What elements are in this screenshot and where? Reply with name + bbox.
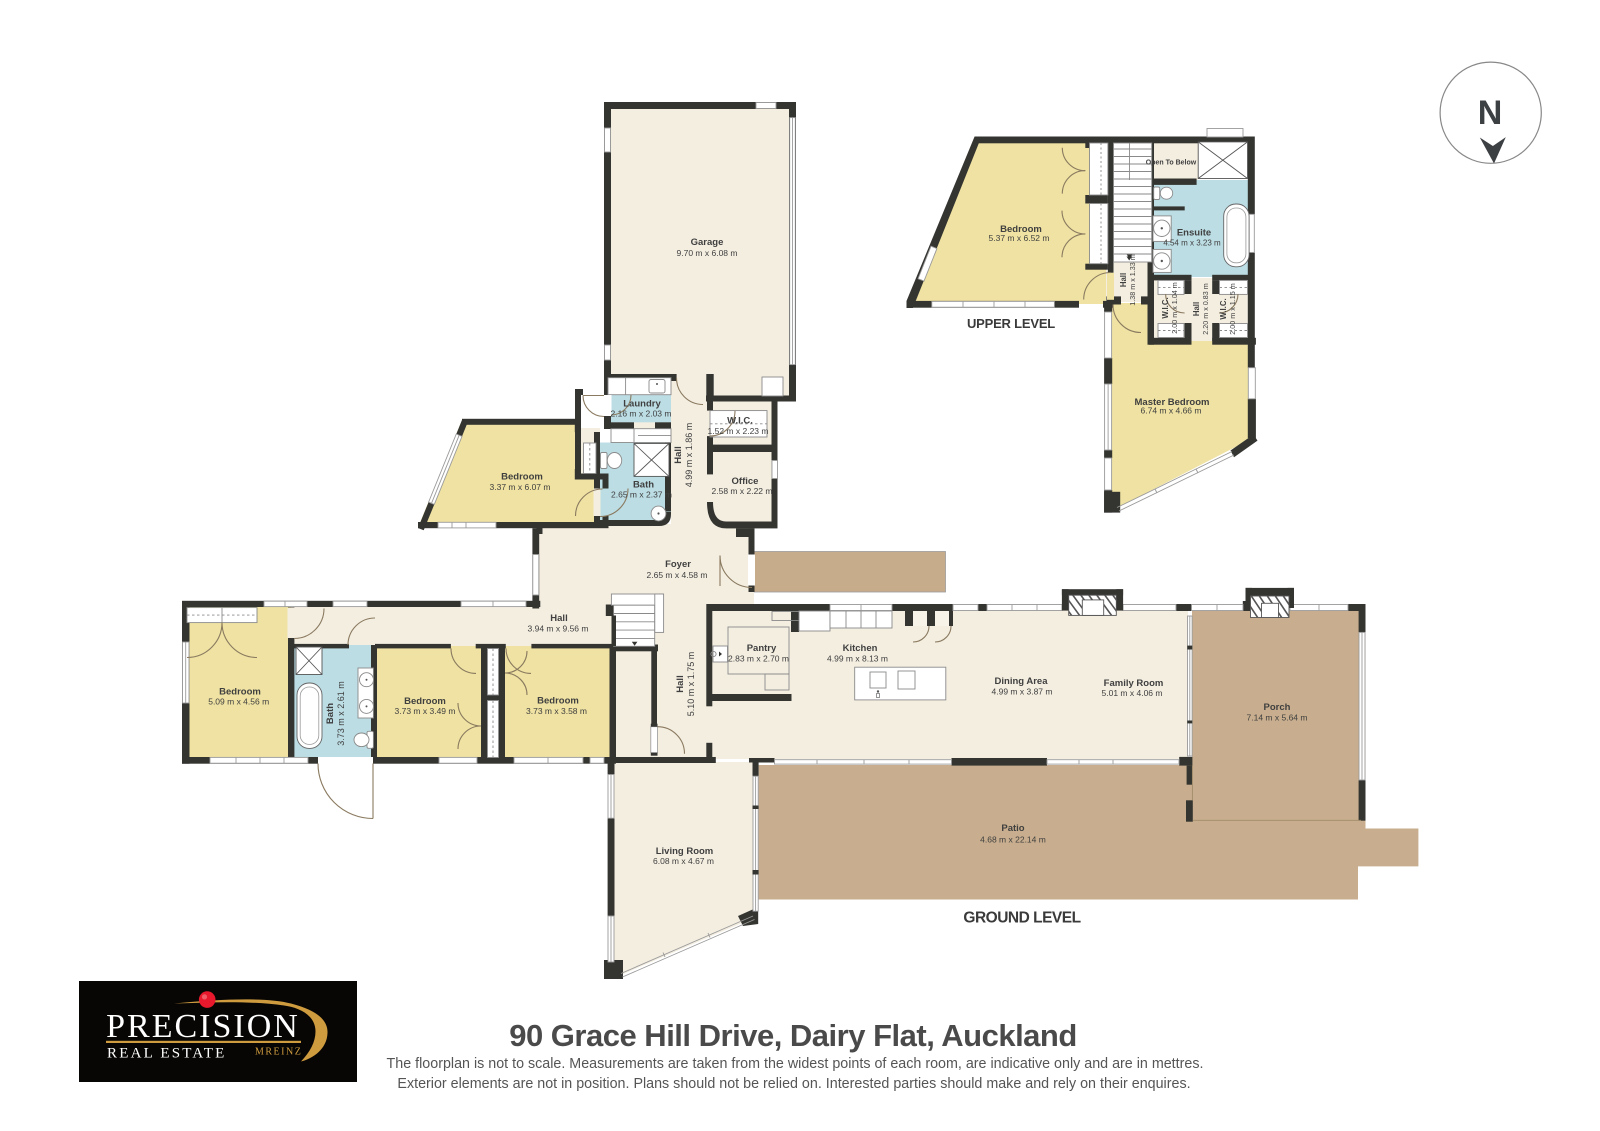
svg-text:2.58 m x 2.22 m: 2.58 m x 2.22 m [712,486,773,496]
svg-text:Exterior elements are not in p: Exterior elements are not in position. P… [397,1076,1190,1092]
svg-text:2.00 m x 1.15 m: 2.00 m x 1.15 m [1228,283,1237,335]
svg-text:2.83 m x 2.70 m: 2.83 m x 2.70 m [728,654,789,664]
svg-text:6.74 m x 4.66 m: 6.74 m x 4.66 m [1141,406,1202,416]
svg-text:5.01 m x 4.06 m: 5.01 m x 4.06 m [1102,688,1163,698]
svg-text:4.68 m x 22.14 m: 4.68 m x 22.14 m [980,835,1046,845]
svg-text:6.08 m x 4.67 m: 6.08 m x 4.67 m [653,856,714,866]
svg-text:W.I.C.: W.I.C. [1161,297,1170,318]
svg-text:Bath: Bath [325,703,336,724]
svg-text:3.73 m x 3.49 m: 3.73 m x 3.49 m [395,706,456,716]
svg-text:3.37 m x 6.07 m: 3.37 m x 6.07 m [490,482,551,492]
svg-text:W.I.C.: W.I.C. [1219,298,1228,319]
svg-text:7.14 m x 5.64 m: 7.14 m x 5.64 m [1247,713,1308,723]
svg-text:2.16 m x 2.03 m: 2.16 m x 2.03 m [611,409,672,419]
svg-text:5.09 m x 4.56 m: 5.09 m x 4.56 m [208,697,269,707]
svg-text:Kitchen: Kitchen [843,643,878,654]
svg-text:Ensuite: Ensuite [1177,228,1211,239]
svg-text:MREINZ: MREINZ [255,1047,302,1058]
svg-text:5.37 m x 6.52 m: 5.37 m x 6.52 m [989,233,1050,243]
svg-text:Garage: Garage [691,237,724,248]
svg-text:2.20 m x 0.83 m: 2.20 m x 0.83 m [1201,283,1210,335]
svg-text:Hall: Hall [673,446,684,463]
svg-text:The floorplan is not to scale.: The floorplan is not to scale. Measureme… [387,1056,1204,1072]
svg-text:4.54 m x 3.23 m: 4.54 m x 3.23 m [1163,239,1221,248]
svg-text:3.73 m x 2.61 m: 3.73 m x 2.61 m [336,681,346,746]
svg-text:W.I.C.: W.I.C. [727,416,753,427]
svg-text:PRECISION: PRECISION [106,1008,300,1045]
svg-text:3.73 m x 3.58 m: 3.73 m x 3.58 m [526,706,587,716]
svg-text:2.00 m x 1.04 m: 2.00 m x 1.04 m [1170,282,1179,334]
svg-text:9.70 m x 6.08 m: 9.70 m x 6.08 m [677,248,738,258]
svg-text:1.38 m x 1.33 m: 1.38 m x 1.33 m [1128,254,1137,306]
svg-text:Open To Below: Open To Below [1146,160,1197,167]
svg-text:4.99 m x 1.86 m: 4.99 m x 1.86 m [684,423,694,488]
svg-text:4.99 m x 8.13 m: 4.99 m x 8.13 m [827,654,888,664]
svg-text:Foyer: Foyer [665,559,691,570]
svg-text:Dining Area: Dining Area [995,676,1049,687]
svg-text:3.94 m x 9.56 m: 3.94 m x 9.56 m [528,624,589,634]
svg-text:4.99 m x 3.87 m: 4.99 m x 3.87 m [992,687,1053,697]
svg-text:Hall: Hall [1119,273,1128,287]
svg-text:2.65 m x 2.37 m: 2.65 m x 2.37 m [611,490,672,500]
svg-text:REAL ESTATE: REAL ESTATE [107,1046,227,1062]
svg-text:UPPER LEVEL: UPPER LEVEL [967,316,1055,331]
svg-text:90 Grace Hill Drive, Dairy Fla: 90 Grace Hill Drive, Dairy Flat, Aucklan… [509,1018,1077,1053]
svg-text:Bedroom: Bedroom [501,472,543,483]
svg-text:Hall: Hall [675,675,686,692]
svg-text:N: N [1478,94,1503,132]
svg-text:Hall: Hall [1192,302,1201,316]
svg-text:5.10 m x 1.75 m: 5.10 m x 1.75 m [686,652,696,717]
svg-text:GROUND LEVEL: GROUND LEVEL [963,910,1080,927]
svg-text:1.52 m x 2.23 m: 1.52 m x 2.23 m [708,426,769,436]
svg-text:Bedroom: Bedroom [537,696,579,707]
svg-text:Porch: Porch [1264,702,1291,713]
svg-text:Patio: Patio [1001,823,1024,834]
svg-text:Pantry: Pantry [747,643,777,654]
svg-text:2.65 m x 4.58 m: 2.65 m x 4.58 m [647,570,708,580]
svg-text:Hall: Hall [550,613,567,624]
